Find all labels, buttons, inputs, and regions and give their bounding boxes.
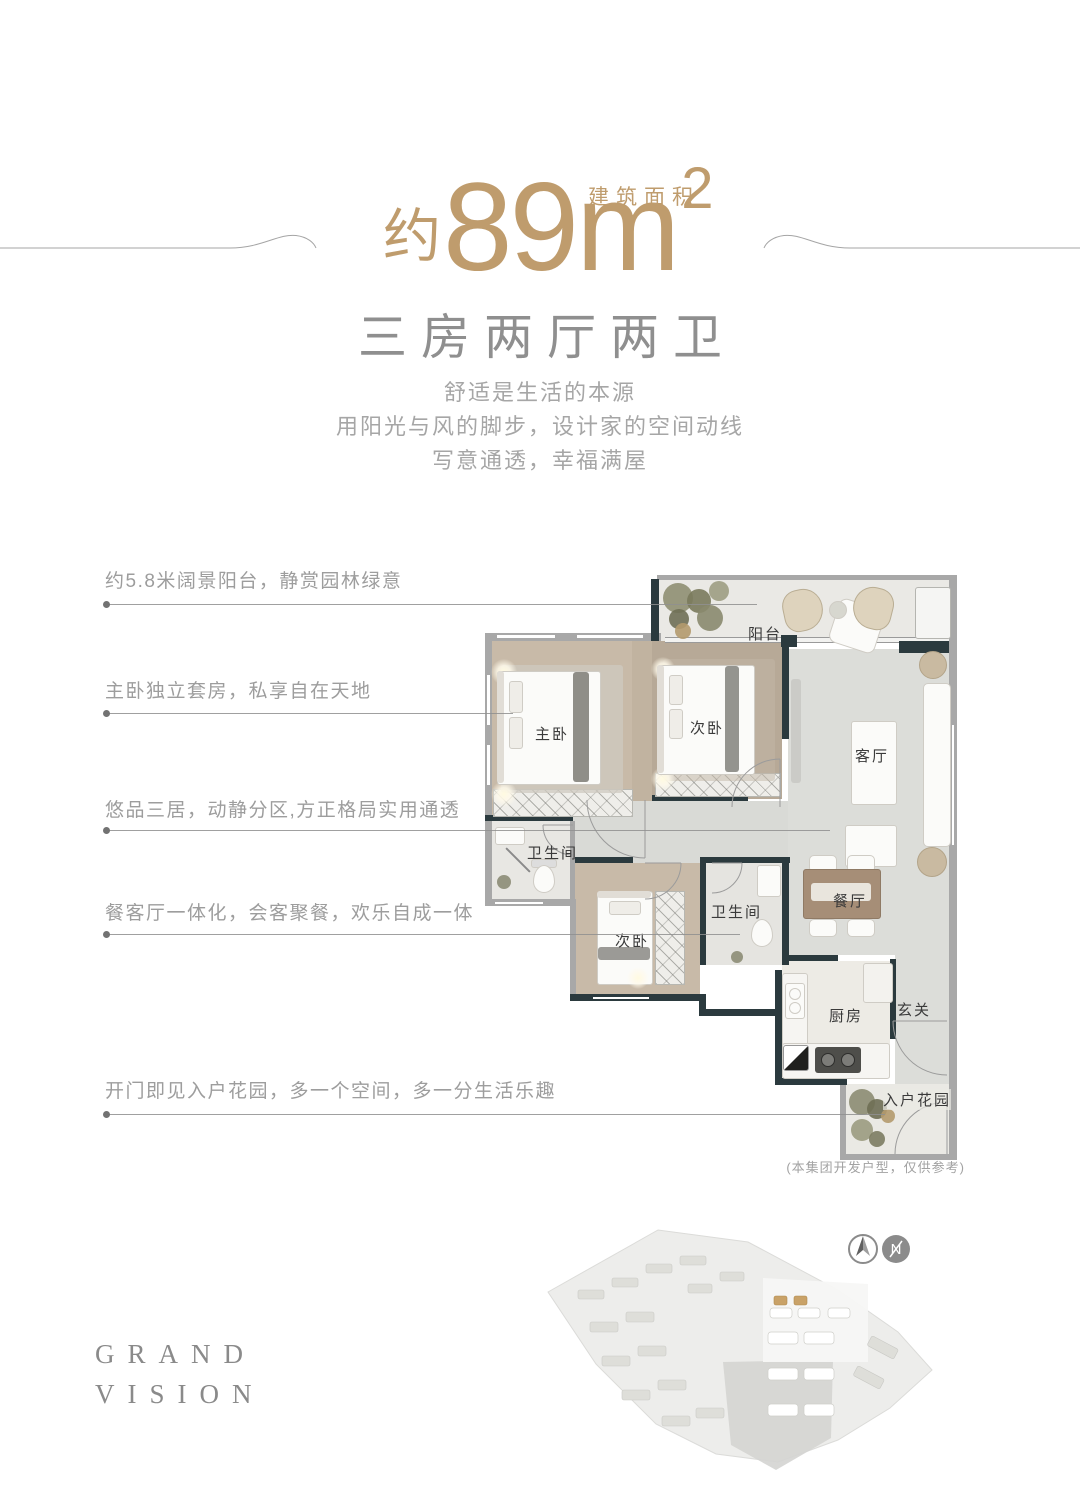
desc-line-3: 写意通透，幸福满屋 (0, 444, 1080, 478)
area-prefix: 约 (383, 208, 441, 266)
callout-three-rooms: 悠品三居，动静分区,方正格局实用通透 (105, 795, 460, 822)
label-kitchen: 厨房 (829, 1005, 863, 1026)
callout-master-suite-line (105, 713, 513, 714)
callout-three-rooms-line (105, 830, 830, 831)
door-arcs (485, 575, 971, 1167)
brand-logo: GRAND VISION (95, 1334, 265, 1414)
callout-balcony-line (105, 604, 757, 605)
brand-line-2: VISION (95, 1374, 265, 1414)
layout-title: 三房两厅两卫 (0, 298, 1080, 369)
area-superscript: 2 (681, 160, 713, 218)
label-foyer: 玄关 (897, 999, 931, 1020)
label-living-room: 客厅 (855, 745, 889, 766)
left-swash-line (0, 232, 320, 264)
callout-entry-garden-line (105, 1114, 885, 1115)
poster-page: 建筑面积 约 89 m 2 三房两厅两卫 舒适是生活的本源 用阳光与风的脚步，设… (0, 0, 1080, 1507)
label-bedroom2: 次卧 (690, 717, 724, 738)
desc-line-2: 用阳光与风的脚步，设计家的空间动线 (0, 410, 1080, 444)
callout-dining-living-line (105, 934, 740, 935)
desc-line-1: 舒适是生活的本源 (0, 376, 1080, 410)
label-balcony: 阳台 (748, 623, 782, 644)
right-swash-line (760, 232, 1080, 264)
label-entry-garden: 入户花园 (883, 1089, 951, 1110)
brand-line-1: GRAND (95, 1334, 265, 1374)
callout-master-suite: 主卧独立套房，私享自在天地 (105, 676, 372, 703)
area-value: 89 (443, 179, 576, 277)
header-description: 舒适是生活的本源 用阳光与风的脚步，设计家的空间动线 写意通透，幸福满屋 (0, 376, 1080, 478)
callout-dining-living: 餐客厅一体化，会客聚餐，欢乐自成一体 (105, 898, 474, 925)
callout-balcony: 约5.8米阔景阳台，静赏园林绿意 (105, 566, 402, 593)
label-master-bedroom: 主卧 (535, 723, 569, 744)
label-bathroom2: 卫生间 (711, 901, 762, 922)
floor-plan: 阳台 主卧 次卧 客厅 卫生间 次卧 卫生间 餐厅 厨房 玄关 入户花园 (485, 575, 971, 1167)
label-bathroom1: 卫生间 (527, 842, 578, 863)
compass-letter: N (891, 1241, 902, 1258)
label-dining-room: 餐厅 (833, 890, 867, 911)
area-unit: m (576, 179, 677, 277)
area-headline: 约 89 m 2 (383, 160, 713, 276)
compass-north-icon: N (846, 1226, 918, 1272)
